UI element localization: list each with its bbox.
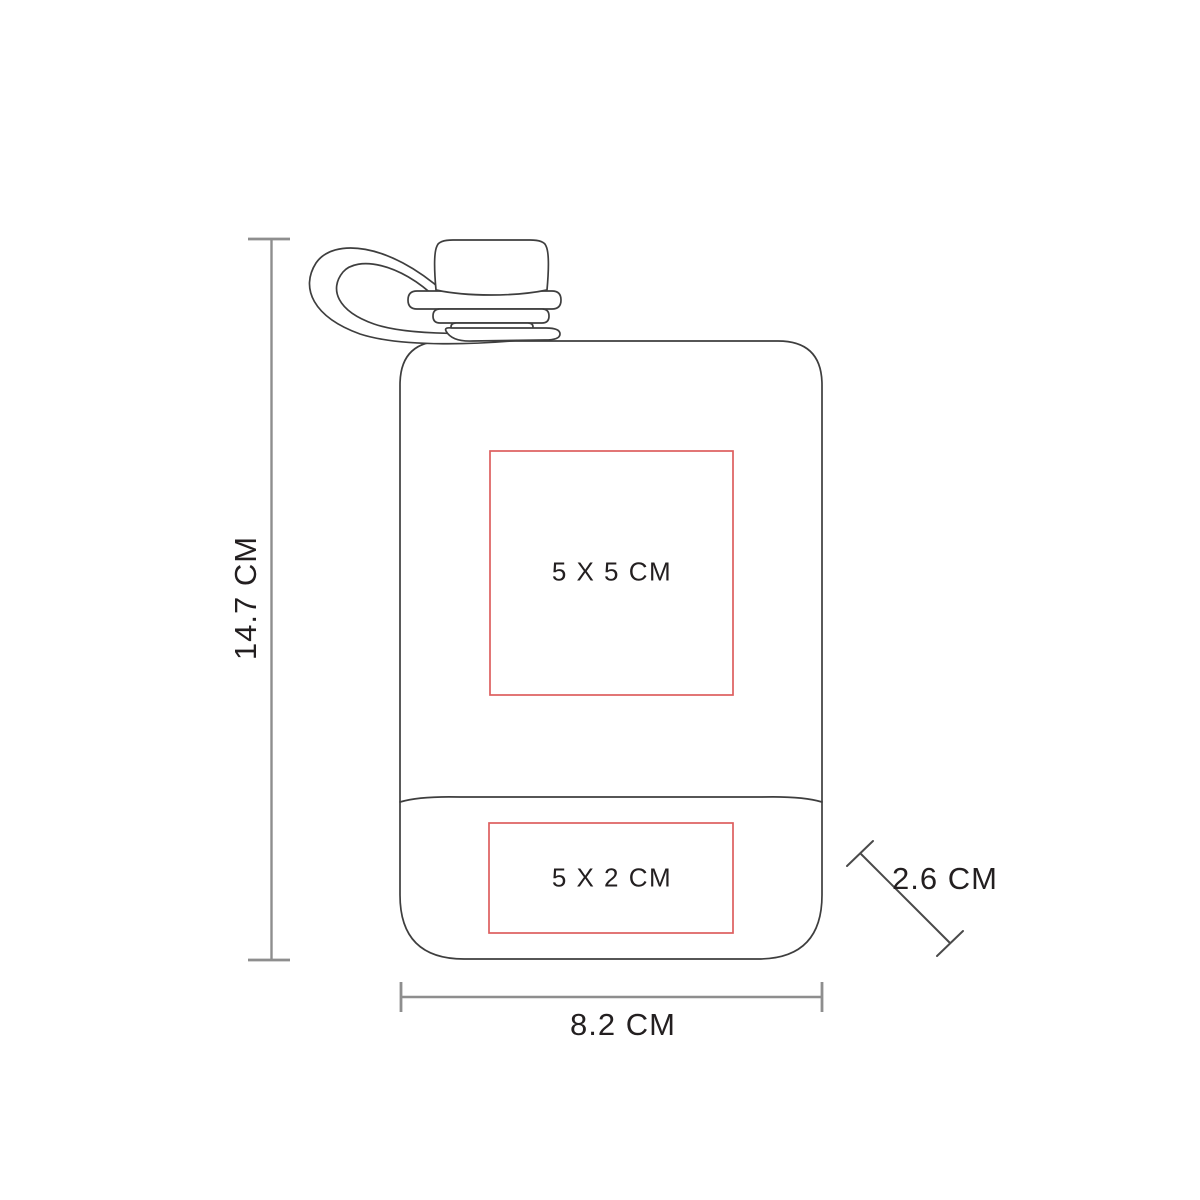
dimension-depth: [847, 841, 963, 956]
print-area-front-label: 5 X 5 CM: [552, 557, 672, 588]
width-dimension-label: 8.2 CM: [570, 1007, 676, 1043]
cap-lip: [446, 328, 560, 341]
cap-top: [435, 240, 549, 295]
depth-dimension-label: 2.6 CM: [892, 861, 998, 897]
cap-assembly: [309, 240, 561, 344]
height-dimension-label: 14.7 CM: [228, 536, 264, 660]
dimension-diagram: 14.7 CM 8.2 CM 2.6 CM 5 X 5 CM 5 X 2 CM: [0, 0, 1200, 1200]
print-area-bottom-label: 5 X 2 CM: [552, 863, 672, 894]
cap-neck-ring: [433, 309, 549, 323]
